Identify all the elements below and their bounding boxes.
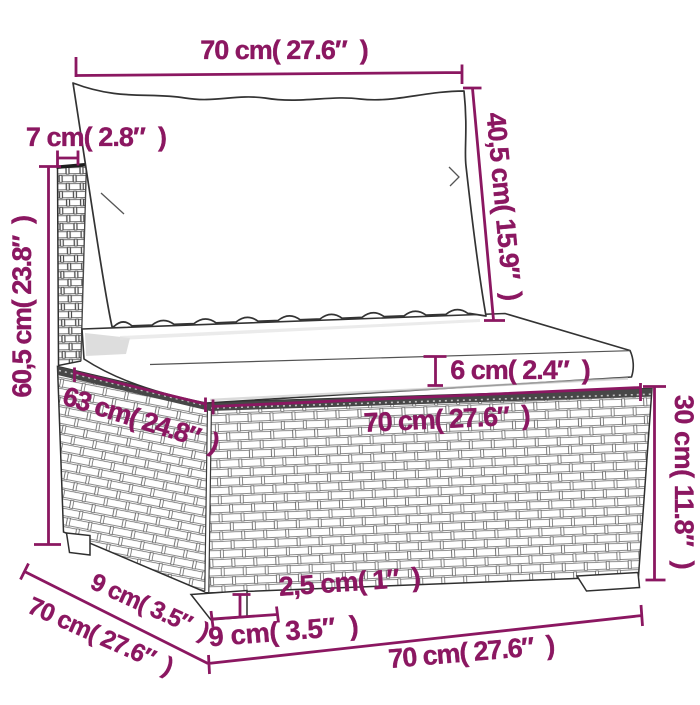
svg-text:70 cm( 27.6″ ): 70 cm( 27.6″ ) bbox=[200, 35, 368, 65]
svg-text:7 cm( 2.8″ ): 7 cm( 2.8″ ) bbox=[26, 122, 166, 152]
svg-text:30 cm( 11.8″ ): 30 cm( 11.8″ ) bbox=[669, 395, 699, 569]
svg-text:60,5 cm( 23.8″ ): 60,5 cm( 23.8″ ) bbox=[7, 216, 37, 398]
svg-text:6 cm( 2.4″ ): 6 cm( 2.4″ ) bbox=[450, 355, 590, 385]
svg-text:40,5 cm( 15.9″ ): 40,5 cm( 15.9″ ) bbox=[481, 111, 528, 301]
svg-text:70 cm( 27.6″ ): 70 cm( 27.6″ ) bbox=[387, 630, 555, 674]
